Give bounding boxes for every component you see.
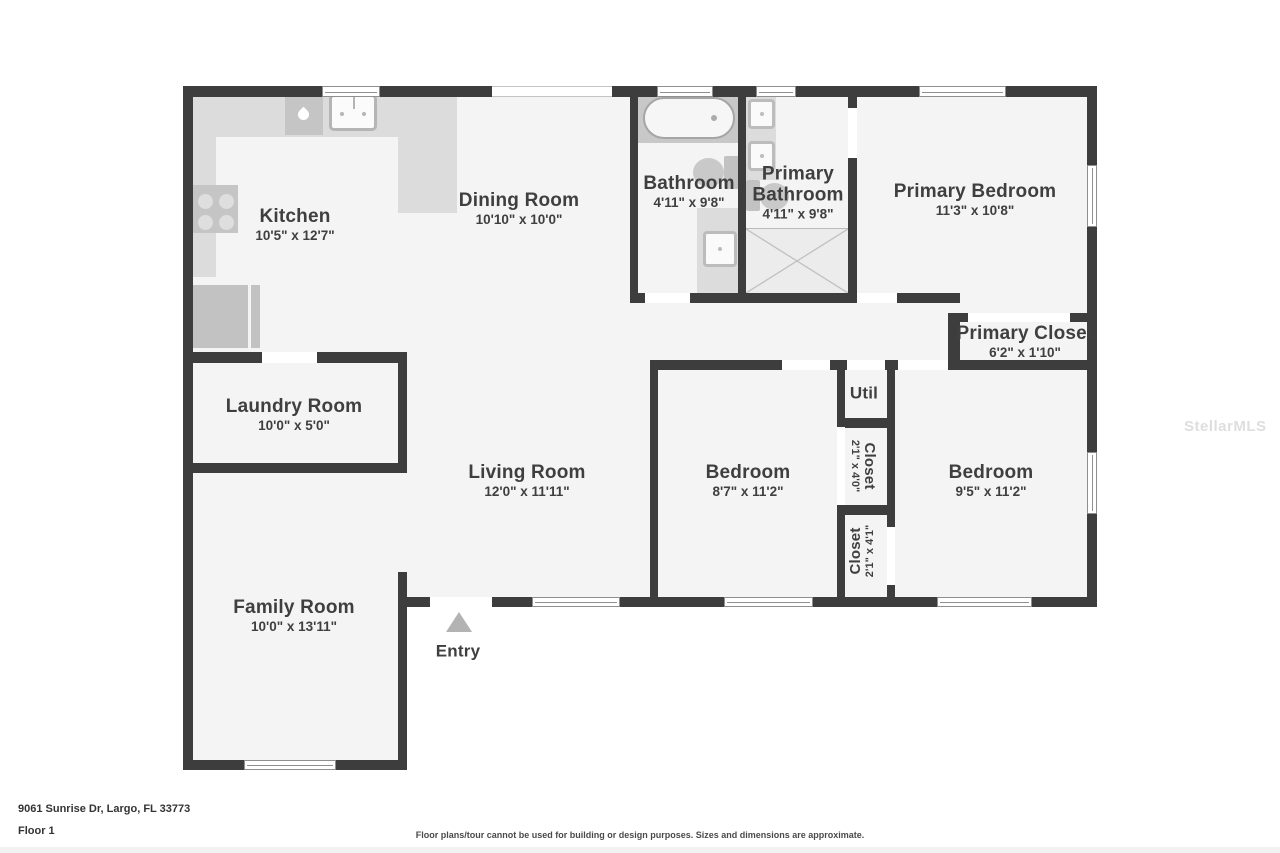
stove-burner-icon: [198, 215, 213, 230]
wall-left: [183, 86, 193, 770]
room-name: Bedroom: [949, 462, 1034, 483]
door-opening-bathroom: [645, 293, 690, 303]
room-label-primary-bathroom: Primary Bathroom 4'11" x 9'8": [749, 164, 847, 223]
room-name: Util: [850, 383, 878, 404]
entry-triangle-icon: [446, 612, 472, 632]
kitchen-sink-icon: [329, 94, 377, 131]
bathroom-sink-icon: [748, 99, 775, 129]
room-name: Dining Room: [459, 190, 579, 211]
room-label-kitchen: Kitchen 10'5" x 12'7": [255, 206, 334, 244]
footer-address: 9061 Sunrise Dr, Largo, FL 33773: [18, 803, 190, 815]
room-name: Living Room: [468, 462, 585, 483]
watermark: StellarMLS: [1184, 418, 1267, 435]
door-opening-bedroom-right: [898, 360, 948, 370]
room-dims: 10'10" x 10'0": [459, 211, 579, 228]
door-opening-util: [847, 360, 885, 370]
room-dims: 2'1" x 4'1": [864, 525, 877, 577]
room-dims: 9'5" x 11'2": [949, 483, 1034, 500]
bathtub-icon: [643, 97, 735, 139]
room-name: Primary Bathroom: [749, 164, 847, 206]
room-name: Kitchen: [255, 206, 334, 227]
room-label-primary-closet: Primary Closet 6'2" x 1'10": [957, 323, 1094, 361]
room-dims: 10'0" x 5'0": [226, 417, 362, 434]
room-label-laundry: Laundry Room 10'0" x 5'0": [226, 396, 362, 434]
door-opening-closet-lower: [887, 527, 895, 585]
refrigerator-icon: [193, 285, 248, 348]
room-label-living: Living Room 12'0" x 11'11": [468, 462, 585, 500]
room-dims: 12'0" x 11'11": [468, 483, 585, 500]
window-primary-bedroom-top: [919, 86, 1006, 97]
window-bedroom-right-side: [1087, 452, 1097, 514]
kitchen-counter-right: [398, 137, 457, 213]
wall-laundry-right: [398, 352, 407, 473]
door-opening-primary-bathroom: [848, 108, 857, 158]
room-label-entry: Entry: [436, 641, 480, 662]
window-dining: [492, 86, 612, 97]
room-name: Family Room: [233, 597, 355, 618]
room-name: Laundry Room: [226, 396, 362, 417]
window-primary-bathroom: [756, 86, 796, 97]
window-kitchen: [322, 86, 380, 97]
door-opening-bedroom-left: [782, 360, 830, 370]
room-label-closet-lower: Closet 2'1" x 4'1": [847, 525, 877, 577]
room-label-primary-bedroom: Primary Bedroom 11'3" x 10'8": [894, 181, 1056, 219]
room-label-family: Family Room 10'0" x 13'11": [233, 597, 355, 635]
room-dims: 10'5" x 12'7": [255, 227, 334, 244]
kitchen-counter-top: [193, 97, 457, 137]
room-label-bathroom: Bathroom 4'11" x 9'8": [643, 173, 734, 211]
wall-bathroom-divider: [738, 97, 746, 293]
wall-bedroom-left: [650, 360, 658, 607]
faucet-icon: [353, 97, 355, 109]
wall-laundry-bottom: [183, 463, 407, 473]
door-opening-laundry: [262, 352, 317, 363]
room-dims: 8'7" x 11'2": [706, 483, 791, 500]
sink-dot-icon: [340, 112, 344, 116]
bottom-strip: [0, 847, 1280, 853]
room-name: Bathroom: [643, 173, 734, 194]
wall-family-right: [398, 572, 407, 770]
refrigerator-door-icon: [251, 285, 260, 348]
door-opening-entry: [430, 597, 492, 607]
window-family-room: [244, 760, 336, 770]
room-label-bedroom-left: Bedroom 8'7" x 11'2": [706, 462, 791, 500]
room-name: Primary Closet: [957, 323, 1094, 344]
bathroom-sink-icon: [703, 231, 737, 267]
room-dims: 4'11" x 9'8": [643, 194, 734, 211]
footer-disclaimer: Floor plans/tour cannot be used for buil…: [0, 830, 1280, 840]
room-label-bedroom-right: Bedroom 9'5" x 11'2": [949, 462, 1034, 500]
room-name: Bedroom: [706, 462, 791, 483]
room-dims: 2'1" x 4'0": [848, 440, 861, 492]
window-living-room: [532, 597, 620, 607]
sink-dot-icon: [362, 112, 366, 116]
window-bathroom: [657, 86, 713, 97]
room-dims: 4'11" x 9'8": [749, 206, 847, 223]
stove-burner-icon: [219, 194, 234, 209]
room-name: Primary Bedroom: [894, 181, 1056, 202]
wall-bathroom-left: [630, 97, 638, 303]
window-primary-bedroom-right: [1087, 165, 1097, 227]
floor-plan: Kitchen 10'5" x 12'7" Dining Room 10'10"…: [0, 0, 1280, 853]
room-dims: 10'0" x 13'11": [233, 618, 355, 635]
window-bedroom-right-bottom: [937, 597, 1032, 607]
room-label-closet-upper: Closet 2'1" x 4'0": [848, 440, 878, 492]
room-label-util: Util: [850, 383, 878, 404]
room-name: Closet: [861, 440, 878, 492]
shower-icon: [746, 228, 848, 293]
room-dims: 11'3" x 10'8": [894, 202, 1056, 219]
stove-burner-icon: [219, 215, 234, 230]
room-label-dining: Dining Room 10'10" x 10'0": [459, 190, 579, 228]
room-name: Entry: [436, 641, 480, 662]
door-opening-primary-bedroom: [857, 293, 897, 303]
window-bedroom-left-bottom: [724, 597, 813, 607]
door-opening-closet-upper: [837, 427, 845, 505]
room-dims: 6'2" x 1'10": [957, 344, 1094, 361]
room-name: Closet: [847, 525, 864, 577]
door-opening-primary-closet: [968, 313, 1070, 322]
stove-burner-icon: [198, 194, 213, 209]
